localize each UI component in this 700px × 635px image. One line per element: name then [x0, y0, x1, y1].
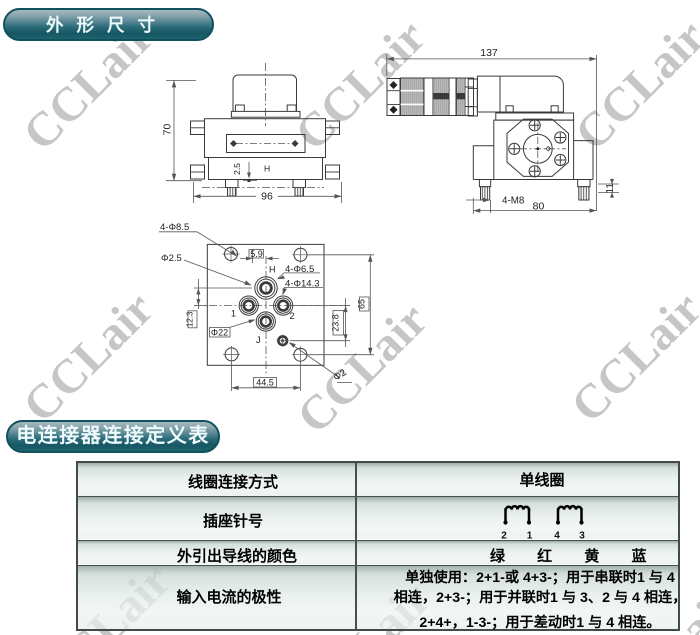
svg-text:44.5: 44.5	[256, 378, 274, 388]
svg-text:65: 65	[357, 299, 367, 309]
svg-text:137: 137	[480, 47, 498, 59]
svg-text:1: 1	[231, 309, 236, 319]
svg-text:4-M8: 4-M8	[502, 196, 525, 207]
svg-text:2: 2	[501, 531, 507, 542]
svg-text:CCLair: CCLair	[561, 282, 700, 433]
svg-text:23.8: 23.8	[331, 314, 341, 332]
svg-text:2: 2	[290, 311, 295, 321]
svg-text:3: 3	[579, 531, 585, 542]
svg-text:4-Φ6.5: 4-Φ6.5	[285, 264, 314, 275]
svg-text:4: 4	[554, 531, 560, 542]
svg-text:80: 80	[533, 201, 545, 213]
svg-text:2.5: 2.5	[232, 163, 242, 175]
svg-text:CCLair: CCLair	[13, 282, 164, 433]
svg-text:1: 1	[527, 531, 533, 542]
svg-text:12.3: 12.3	[186, 311, 195, 327]
svg-text:5.9: 5.9	[250, 249, 263, 259]
svg-text:4-Φ8.5: 4-Φ8.5	[160, 222, 189, 233]
svg-text:CCLair: CCLair	[287, 293, 438, 444]
svg-text:H: H	[264, 164, 270, 174]
svg-text:96: 96	[261, 191, 273, 203]
svg-text:Φ22: Φ22	[211, 328, 228, 338]
svg-text:J: J	[256, 335, 261, 345]
svg-text:Φ2.5: Φ2.5	[161, 253, 182, 264]
svg-text:4-Φ14.3: 4-Φ14.3	[285, 279, 320, 290]
svg-text:70: 70	[162, 124, 174, 136]
svg-text:11: 11	[605, 183, 616, 194]
svg-text:CCLair: CCLair	[565, 10, 700, 161]
svg-text:H: H	[269, 265, 276, 275]
